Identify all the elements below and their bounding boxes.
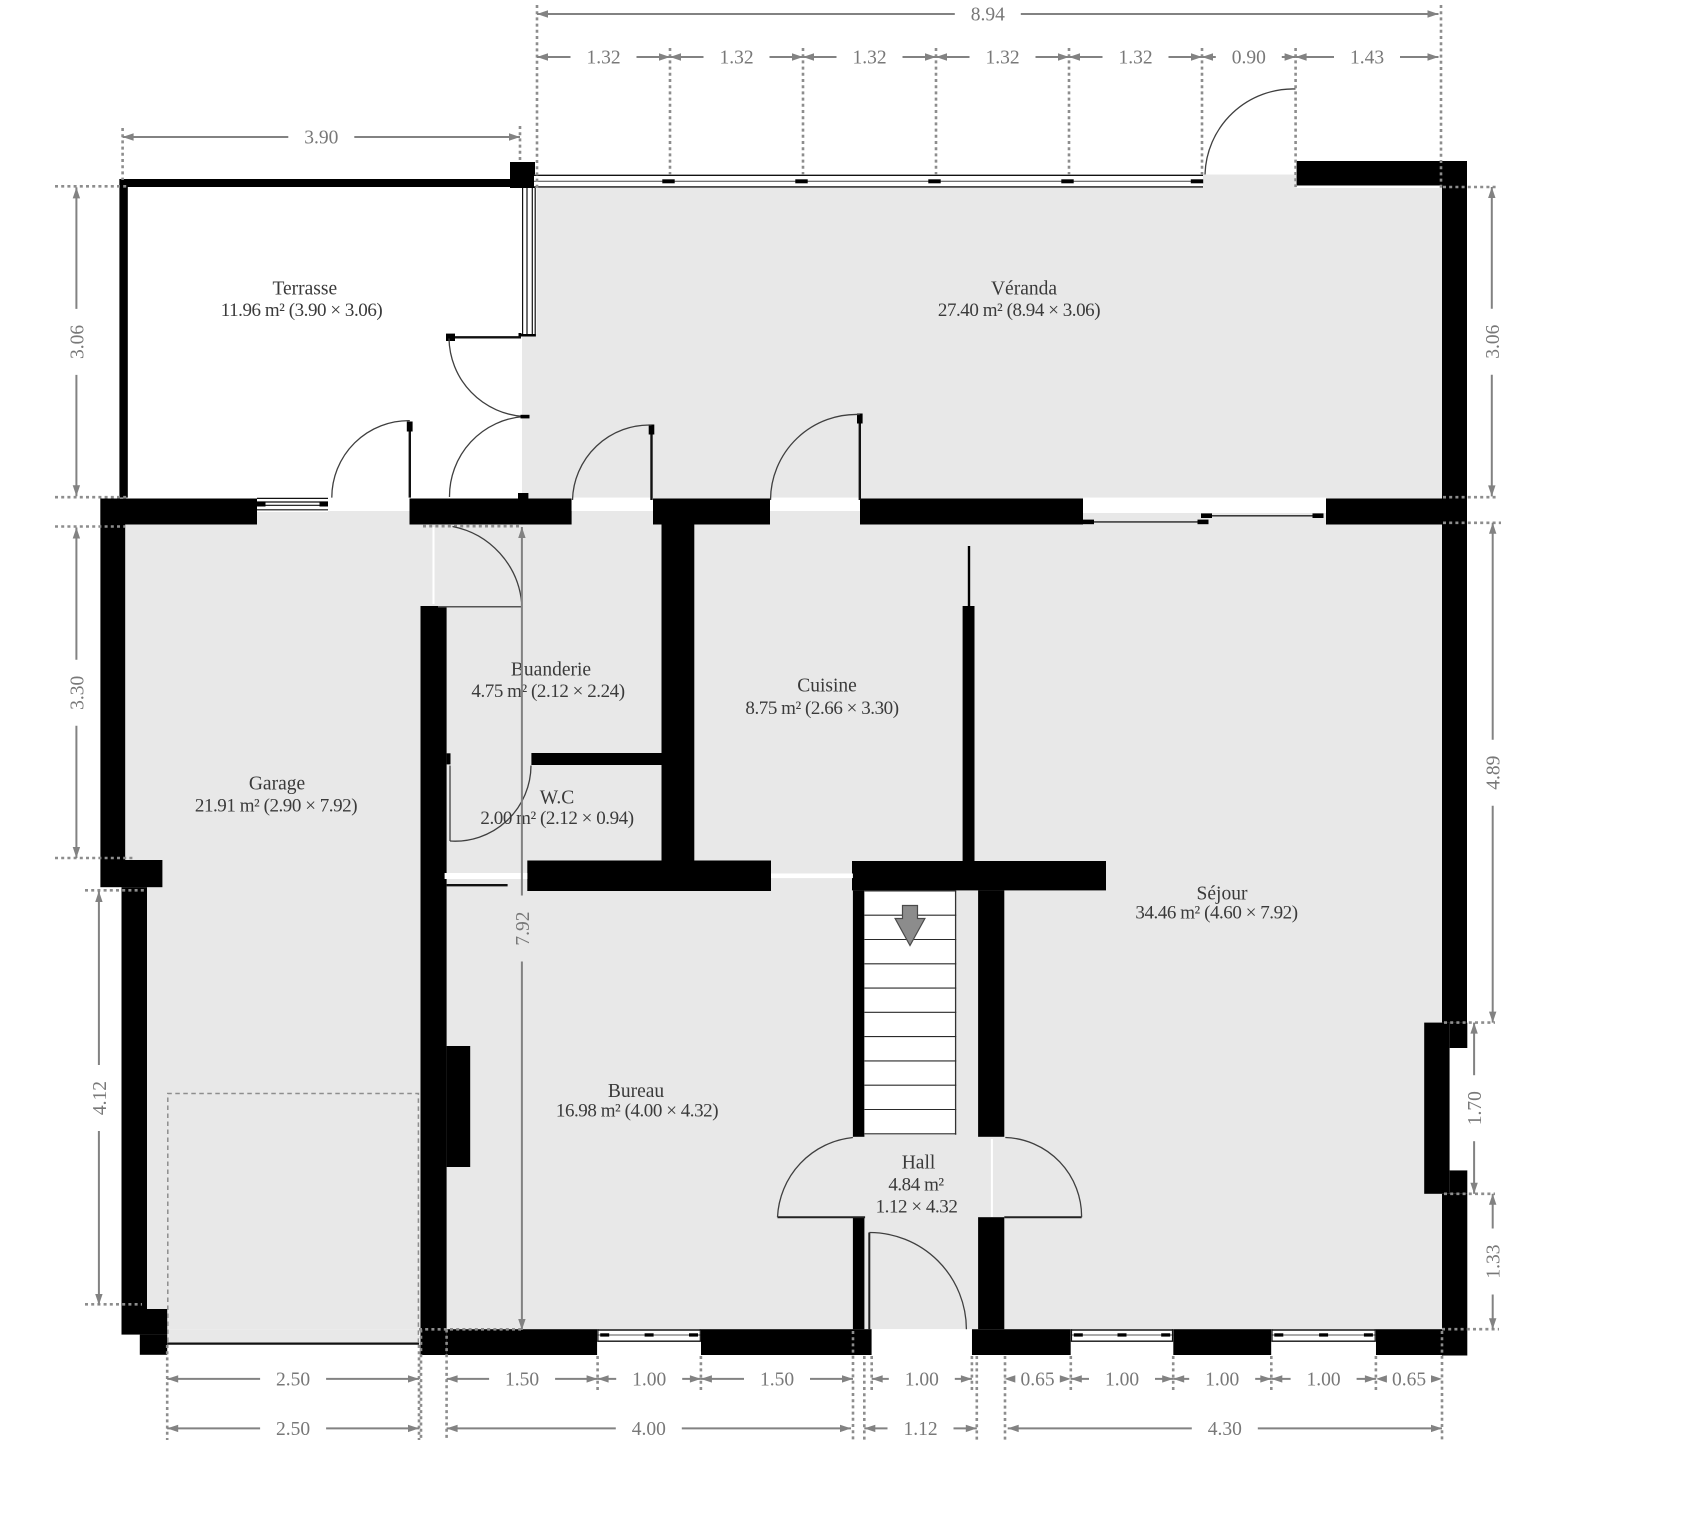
svg-text:16.98 m² (4.00 × 4.32): 16.98 m² (4.00 × 4.32): [556, 1101, 718, 1122]
svg-text:Séjour: Séjour: [1197, 884, 1248, 905]
svg-text:4.89: 4.89: [1484, 756, 1505, 790]
svg-text:Garage: Garage: [249, 774, 305, 795]
svg-text:4.12: 4.12: [90, 1081, 111, 1115]
svg-text:Hall: Hall: [902, 1153, 936, 1174]
svg-text:1.43: 1.43: [1350, 48, 1384, 69]
svg-text:1.50: 1.50: [505, 1369, 539, 1390]
svg-text:2.50: 2.50: [276, 1419, 310, 1440]
svg-text:1.32: 1.32: [1118, 48, 1152, 69]
svg-text:Cuisine: Cuisine: [797, 676, 857, 697]
svg-text:4.00: 4.00: [632, 1419, 666, 1440]
svg-text:3.06: 3.06: [67, 325, 88, 359]
svg-text:21.91 m² (2.90 × 7.92): 21.91 m² (2.90 × 7.92): [195, 796, 357, 817]
svg-text:1.70: 1.70: [1465, 1091, 1486, 1125]
svg-text:34.46 m² (4.60 × 7.92): 34.46 m² (4.60 × 7.92): [1135, 903, 1297, 924]
svg-text:1.12: 1.12: [903, 1419, 937, 1440]
svg-text:3.30: 3.30: [67, 676, 88, 710]
svg-text:0.90: 0.90: [1232, 48, 1266, 69]
svg-text:1.00: 1.00: [1105, 1369, 1139, 1390]
svg-text:1.00: 1.00: [632, 1369, 666, 1390]
svg-text:Buanderie: Buanderie: [511, 660, 591, 681]
svg-text:7.92: 7.92: [513, 911, 534, 945]
svg-text:1.32: 1.32: [985, 48, 1019, 69]
svg-text:1.50: 1.50: [760, 1369, 794, 1390]
svg-text:1.32: 1.32: [852, 48, 886, 69]
svg-text:3.06: 3.06: [1483, 324, 1504, 358]
svg-text:1.12 × 4.32: 1.12 × 4.32: [876, 1197, 958, 1218]
svg-text:1.32: 1.32: [586, 48, 620, 69]
svg-text:1.33: 1.33: [1484, 1244, 1505, 1278]
svg-text:11.96 m² (3.90 × 3.06): 11.96 m² (3.90 × 3.06): [221, 300, 383, 321]
svg-text:3.90: 3.90: [304, 128, 338, 149]
svg-text:0.65: 0.65: [1392, 1369, 1426, 1390]
svg-text:1.00: 1.00: [1307, 1369, 1341, 1390]
svg-text:27.40 m² (8.94 × 3.06): 27.40 m² (8.94 × 3.06): [938, 300, 1100, 321]
svg-text:1.00: 1.00: [1205, 1369, 1239, 1390]
svg-text:2.50: 2.50: [276, 1369, 310, 1390]
svg-text:4.75 m² (2.12 × 2.24): 4.75 m² (2.12 × 2.24): [471, 681, 624, 702]
svg-text:Terrasse: Terrasse: [272, 279, 337, 300]
svg-text:W.C: W.C: [540, 788, 575, 809]
svg-text:0.65: 0.65: [1020, 1369, 1054, 1390]
svg-text:1.32: 1.32: [719, 48, 753, 69]
svg-text:Véranda: Véranda: [991, 279, 1057, 300]
svg-text:4.84 m²: 4.84 m²: [888, 1175, 944, 1196]
svg-text:Bureau: Bureau: [608, 1081, 665, 1102]
svg-text:8.94: 8.94: [971, 5, 1005, 26]
svg-text:2.00 m² (2.12 × 0.94): 2.00 m² (2.12 × 0.94): [480, 808, 633, 829]
svg-text:1.00: 1.00: [905, 1369, 939, 1390]
svg-text:4.30: 4.30: [1208, 1419, 1242, 1440]
svg-text:8.75 m² (2.66 × 3.30): 8.75 m² (2.66 × 3.30): [745, 698, 898, 719]
